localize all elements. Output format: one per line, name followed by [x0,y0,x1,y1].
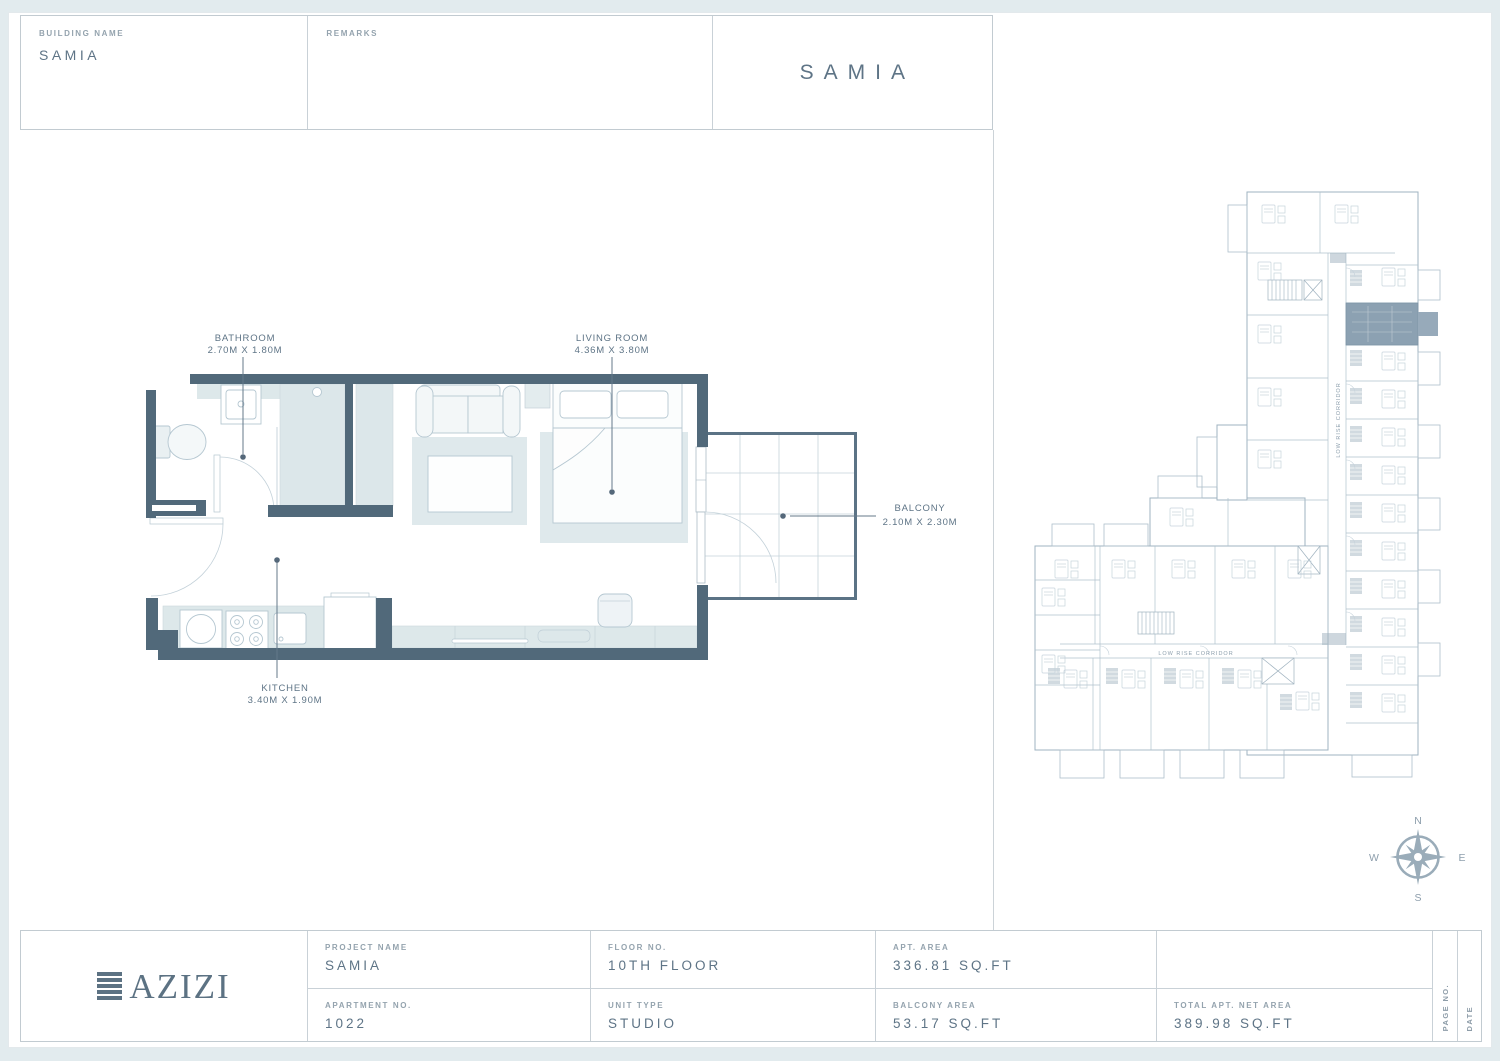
bathroom-dims: 2.70M X 1.80M [208,345,283,356]
compass-south: S [1414,892,1421,904]
kitchen-dims: 3.40M X 1.90M [248,695,323,706]
bathroom-label: BATHROOM [215,333,276,344]
unit-type-value: STUDIO [608,1016,875,1031]
unit-type-label: UNIT TYPE [608,1001,875,1010]
azizi-logo-icon [97,972,122,999]
kitchen-label: KITCHEN [261,683,308,694]
floor-plan-sheet-page: { "header": { "building_name_label": "BU… [0,0,1500,1061]
living-room-label: LIVING ROOM [576,333,648,344]
balcony-area-value: 53.17 SQ.FT [893,1016,1156,1031]
apt-area-cell: APT. AREA 336.81 SQ.FT [875,931,1156,988]
total-area-cell: TOTAL APT. NET AREA 389.98 SQ.FT [1156,988,1432,1041]
corridor-label-vertical: LOW RISE CORRIDOR [1336,382,1342,457]
project-name-label: PROJECT NAME [325,943,590,952]
unit-plan: BATHROOM 2.70M X 1.80M LIVING ROOM 4.36M… [146,333,957,706]
building-overview: LOW RISE CORRIDOR LOW RISE CORRIDOR [1035,192,1440,778]
balcony-area-label: BALCONY AREA [893,1001,1156,1010]
compass-east: E [1458,852,1465,864]
apartment-no-cell: APARTMENT NO. 1022 [307,988,590,1041]
floor-no-value: 10TH FLOOR [608,958,875,973]
project-name-cell: PROJECT NAME SAMIA [307,931,590,988]
floor-no-label: FLOOR NO. [608,943,875,952]
page-no-label: PAGE NO. [1441,984,1450,1031]
entry-door [150,518,223,596]
floor-no-cell: FLOOR NO. 10TH FLOOR [590,931,875,988]
compass-north: N [1414,815,1422,827]
floor-plan-drawing: BATHROOM 2.70M X 1.80M LIVING ROOM 4.36M… [0,0,1500,1061]
living-room-dims: 4.36M X 3.80M [575,345,650,356]
total-area-label: TOTAL APT. NET AREA [1174,1001,1432,1010]
page-no-cell: PAGE NO. [1432,931,1457,1041]
balcony-dims: 2.10M X 2.30M [883,517,958,528]
total-area-value: 389.98 SQ.FT [1174,1016,1432,1031]
highlighted-unit [1346,303,1438,345]
apartment-no-label: APARTMENT NO. [325,1001,590,1010]
empty-cell [1156,931,1432,988]
azizi-logo: AZIZI [97,969,230,1004]
apartment-no-value: 1022 [325,1016,590,1031]
apt-area-label: APT. AREA [893,943,1156,952]
project-name-value: SAMIA [325,958,590,973]
azizi-logo-text: AZIZI [129,969,230,1004]
apt-area-value: 336.81 SQ.FT [893,958,1156,973]
date-label: DATE [1465,1006,1474,1031]
unit-type-cell: UNIT TYPE STUDIO [590,988,875,1041]
compass-rose: N S W E [1369,815,1465,904]
date-cell: DATE [1457,931,1481,1041]
compass-west: W [1369,852,1379,864]
balcony-area-cell: BALCONY AREA 53.17 SQ.FT [875,988,1156,1041]
title-block-bottom: AZIZI PROJECT NAME SAMIA FLOOR NO. 10TH … [20,930,1482,1042]
balcony-label: BALCONY [894,503,945,514]
corridor-label-horizontal: LOW RISE CORRIDOR [1158,651,1233,657]
developer-logo-cell: AZIZI [21,931,307,1041]
